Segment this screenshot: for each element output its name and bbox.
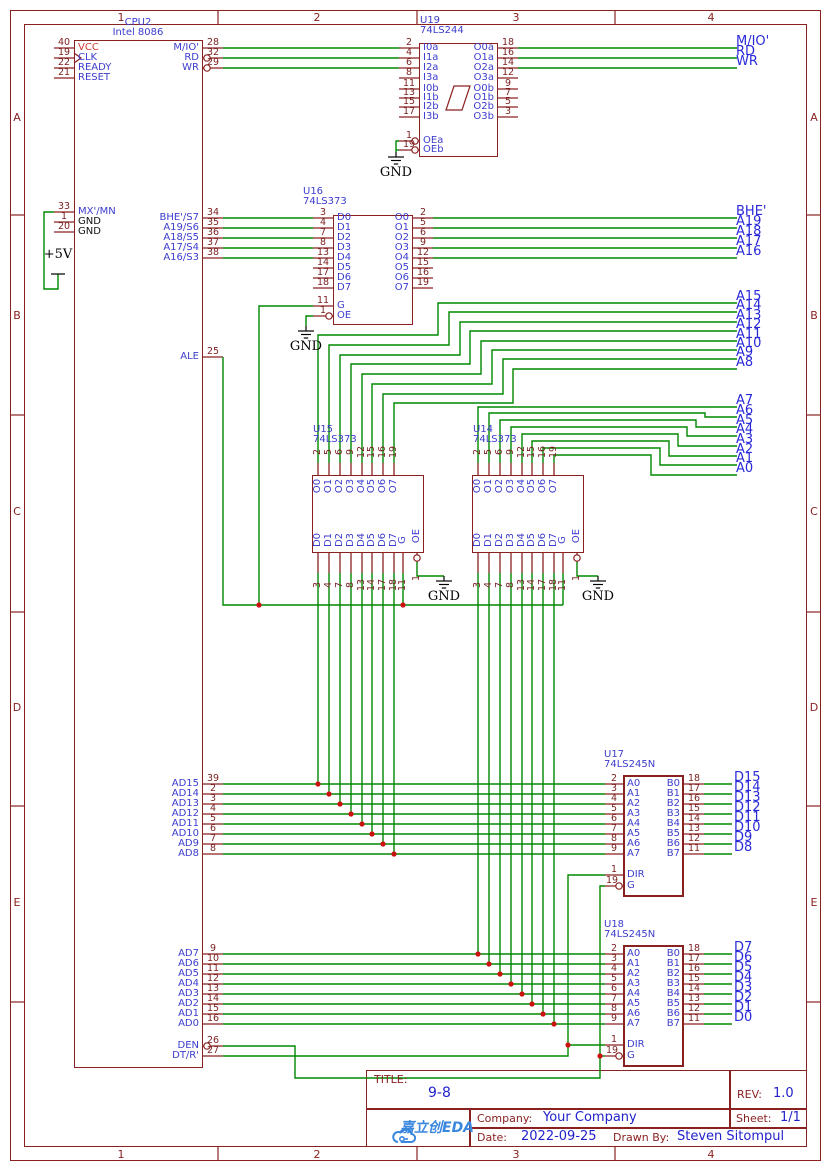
pin-name: D0 xyxy=(313,533,323,547)
pin-name: O2 xyxy=(495,479,505,493)
junction-dot xyxy=(486,961,491,966)
junction-dot xyxy=(256,602,261,607)
pin-number: 12 xyxy=(502,68,514,78)
frame-column-label: 4 xyxy=(708,12,715,23)
pin-number: 11 xyxy=(558,579,568,591)
inversion-bubble xyxy=(414,555,420,561)
junction-dot xyxy=(400,602,405,607)
pin-number: 8 xyxy=(506,582,516,588)
frame-column-label: 4 xyxy=(708,1149,715,1160)
pin-number: 27 xyxy=(207,1046,219,1056)
pin-number: 19 xyxy=(389,446,399,458)
junction-dot xyxy=(519,991,524,996)
pin-name: DT/R' xyxy=(172,1051,199,1061)
pin-number: 1 xyxy=(611,1035,617,1045)
pin-number: 5 xyxy=(324,449,334,455)
pin-number: 38 xyxy=(207,248,219,258)
drawn-by-label: Drawn By: xyxy=(613,1132,669,1143)
junction-dot xyxy=(597,1053,602,1058)
gnd-label: GND xyxy=(290,340,322,353)
pin-number: 1 xyxy=(412,575,422,581)
junction-dot xyxy=(551,1021,556,1026)
pin-number: 7 xyxy=(495,582,505,588)
pin-number: 11 xyxy=(688,844,700,854)
pin-name: G xyxy=(627,881,635,891)
sheet-value: 1/1 xyxy=(780,1111,801,1124)
pin-name: O0 xyxy=(473,479,483,493)
logo-text: 嘉立创EDA xyxy=(400,1120,474,1136)
pin-name: DIR xyxy=(627,870,645,880)
junction-dot xyxy=(369,831,374,836)
pin-name: O1 xyxy=(324,479,334,493)
rev-value: 1.0 xyxy=(773,1087,794,1100)
pin-number: 17 xyxy=(403,107,415,117)
pin-number: 17 xyxy=(538,579,548,591)
pin-number: 9 xyxy=(611,1014,617,1024)
net-label-A16[interactable]: A16 xyxy=(736,245,761,258)
net-label-WR[interactable]: WR xyxy=(736,55,758,68)
u16-value: 74LS373 xyxy=(303,197,347,207)
pin-name: OEb xyxy=(423,145,444,155)
pin-name: I3a xyxy=(423,73,438,83)
pin-name: D1 xyxy=(484,533,494,547)
frame-row-label: C xyxy=(810,506,818,517)
frame-row-label: A xyxy=(810,112,818,123)
pin-number: 29 xyxy=(207,58,219,68)
pin-number: 8 xyxy=(346,582,356,588)
pin-number: 1 xyxy=(611,865,617,875)
pin-number: 8 xyxy=(406,68,412,78)
company-label: Company: xyxy=(477,1113,532,1124)
pin-number: 19 xyxy=(417,278,429,288)
company-value: Your Company xyxy=(543,1111,637,1124)
pin-name: O7 xyxy=(395,283,409,293)
pin-number: 4 xyxy=(484,582,494,588)
net-label-D8[interactable]: D8 xyxy=(734,841,752,854)
net-label-A0[interactable]: A0 xyxy=(736,462,753,475)
frame-column-label: 3 xyxy=(513,1149,520,1160)
net-label-A8[interactable]: A8 xyxy=(736,356,753,369)
pin-name: D2 xyxy=(335,533,345,547)
junction-dot xyxy=(391,851,396,856)
pin-name: I3b xyxy=(423,112,439,122)
frame-row-label: D xyxy=(13,702,21,713)
pin-number: 14 xyxy=(367,579,377,591)
pin-name: B7 xyxy=(667,849,680,859)
wire[interactable] xyxy=(306,316,313,326)
date-label: Date: xyxy=(477,1132,507,1143)
wire[interactable] xyxy=(577,562,598,576)
pin-name: D2 xyxy=(495,533,505,547)
pin-name: D3 xyxy=(506,533,516,547)
pin-number: 9 xyxy=(346,449,356,455)
pin-number: 2 xyxy=(473,449,483,455)
frame-row-label: C xyxy=(13,506,21,517)
pin-number: 18 xyxy=(317,278,329,288)
pin-name: ALE xyxy=(180,352,199,362)
pin-number: 8 xyxy=(210,844,216,854)
pin-name: D7 xyxy=(337,283,351,293)
frame-row-label: E xyxy=(811,897,818,908)
u17-value: 74LS245N xyxy=(604,760,655,770)
u14-value: 74LS373 xyxy=(473,435,517,445)
junction-dot xyxy=(315,781,320,786)
pin-name: D5 xyxy=(367,533,377,547)
pin-number: 2 xyxy=(313,449,323,455)
title-label: TITLE: xyxy=(374,1074,407,1085)
wiring-layer xyxy=(0,0,831,1171)
pin-number: 11 xyxy=(688,1014,700,1024)
pin-number: 15 xyxy=(367,446,377,458)
pin-name: AD0 xyxy=(178,1019,199,1029)
junction-dot xyxy=(326,791,331,796)
pin-number: 19 xyxy=(403,140,415,150)
pin-name: O6 xyxy=(538,479,548,493)
gnd-label: GND xyxy=(428,590,460,603)
pin-number: 11 xyxy=(398,579,408,591)
pin-number: 9 xyxy=(611,844,617,854)
junction-dot xyxy=(565,1042,570,1047)
pin-name: OE xyxy=(337,311,351,321)
pin-name: O7 xyxy=(549,479,559,493)
pin-name: DIR xyxy=(627,1040,645,1050)
frame-column-label: 1 xyxy=(118,12,125,23)
wire[interactable] xyxy=(417,562,444,576)
pin-name: O5 xyxy=(527,479,537,493)
pin-name: WR xyxy=(182,63,199,73)
pin-name: O1 xyxy=(484,479,494,493)
junction-dot xyxy=(380,841,385,846)
pin-name: A7 xyxy=(627,1019,640,1029)
pin-name: B7 xyxy=(667,1019,680,1029)
pin-number: 6 xyxy=(495,449,505,455)
pin-number: 3 xyxy=(313,582,323,588)
pin-name: O0 xyxy=(313,479,323,493)
pin-number: 3 xyxy=(505,107,511,117)
pin-name: AD8 xyxy=(178,849,199,859)
cpu-value: Intel 8086 xyxy=(113,28,164,38)
pin-number: 9 xyxy=(506,449,516,455)
pin-name: O3 xyxy=(346,479,356,493)
junction-dot xyxy=(337,801,342,806)
pin-number: 19 xyxy=(606,1046,618,1056)
junction-dot xyxy=(348,811,353,816)
frame-column-label: 3 xyxy=(513,12,520,23)
pin-number: 20 xyxy=(58,222,70,232)
pin-name: O6 xyxy=(378,479,388,493)
drawn-by-value: Steven Sitompul xyxy=(677,1130,784,1143)
pin-name: GND xyxy=(78,227,101,237)
pin-number: 25 xyxy=(207,347,219,357)
frame-column-label: 1 xyxy=(118,1149,125,1160)
pin-name: O7 xyxy=(389,479,399,493)
pin-number: 16 xyxy=(538,446,548,458)
schematic-sheet: TITLE: 9-8 REV: 1.0 Company: Your Compan… xyxy=(0,0,831,1171)
pin-name: D3 xyxy=(346,533,356,547)
sheet-label: Sheet: xyxy=(736,1113,772,1124)
junction-dot xyxy=(475,951,480,956)
junction-dot xyxy=(508,981,513,986)
frame-row-label: B xyxy=(13,310,21,321)
u19-value: 74LS244 xyxy=(420,26,464,36)
pin-name: O3 xyxy=(506,479,516,493)
pin-name: OE xyxy=(412,529,422,543)
pin-number: 17 xyxy=(378,579,388,591)
pin-number: 19 xyxy=(606,876,618,886)
pin-number: 6 xyxy=(335,449,345,455)
wire[interactable] xyxy=(318,303,737,463)
pin-name: D6 xyxy=(538,533,548,547)
pin-number: 16 xyxy=(207,1014,219,1024)
wire[interactable] xyxy=(223,875,605,1056)
wire[interactable] xyxy=(394,369,737,463)
pin-name: D6 xyxy=(378,533,388,547)
pin-number: 3 xyxy=(473,582,483,588)
pin-number: 1 xyxy=(320,306,326,316)
pin-number: 5 xyxy=(484,449,494,455)
pin-number: 19 xyxy=(549,446,559,458)
inversion-bubble xyxy=(326,313,332,319)
pin-name: OE xyxy=(572,529,582,543)
date-value: 2022-09-25 xyxy=(521,1130,597,1143)
vcc-label: +5V xyxy=(44,248,73,261)
junction-dot xyxy=(540,1011,545,1016)
net-label-D0[interactable]: D0 xyxy=(734,1011,752,1024)
pin-name: O2 xyxy=(335,479,345,493)
wire[interactable] xyxy=(351,331,737,463)
pin-name: G xyxy=(627,1051,635,1061)
pin-number: 15 xyxy=(527,446,537,458)
wire[interactable] xyxy=(223,886,605,1078)
wire[interactable] xyxy=(532,441,737,463)
frame-column-label: 2 xyxy=(314,1149,321,1160)
pin-number: 7 xyxy=(335,582,345,588)
junction-dot xyxy=(497,971,502,976)
pin-number: 14 xyxy=(527,579,537,591)
sheet-title: 9-8 xyxy=(428,1086,451,1100)
pin-number: 1 xyxy=(572,575,582,581)
pin-name: O3b xyxy=(473,112,494,122)
gnd-label: GND xyxy=(380,166,412,179)
pin-name: G xyxy=(558,536,568,544)
frame-row-label: D xyxy=(810,702,818,713)
gnd-label: GND xyxy=(582,590,614,603)
frame-row-label: A xyxy=(13,112,21,123)
pin-number: 16 xyxy=(378,446,388,458)
inversion-bubble xyxy=(574,555,580,561)
pin-name: D0 xyxy=(473,533,483,547)
u15-value: 74LS373 xyxy=(313,435,357,445)
frame-column-label: 2 xyxy=(314,12,321,23)
pin-name: A7 xyxy=(627,849,640,859)
pin-name: O3a xyxy=(474,73,494,83)
buffer-glyph xyxy=(446,86,470,110)
frame-row-label: B xyxy=(810,310,818,321)
pin-name: A16/S3 xyxy=(163,253,199,263)
rev-label: REV: xyxy=(737,1089,762,1100)
u18-value: 74LS245N xyxy=(604,930,655,940)
pin-name: D1 xyxy=(324,533,334,547)
pin-name: RESET xyxy=(78,73,110,83)
pin-number: 4 xyxy=(324,582,334,588)
frame-row-label: E xyxy=(14,897,21,908)
junction-dot xyxy=(529,1001,534,1006)
pin-name: G xyxy=(398,536,408,544)
junction-dot xyxy=(359,821,364,826)
pin-name: O5 xyxy=(367,479,377,493)
pin-number: 21 xyxy=(58,68,70,78)
pin-name: D5 xyxy=(527,533,537,547)
